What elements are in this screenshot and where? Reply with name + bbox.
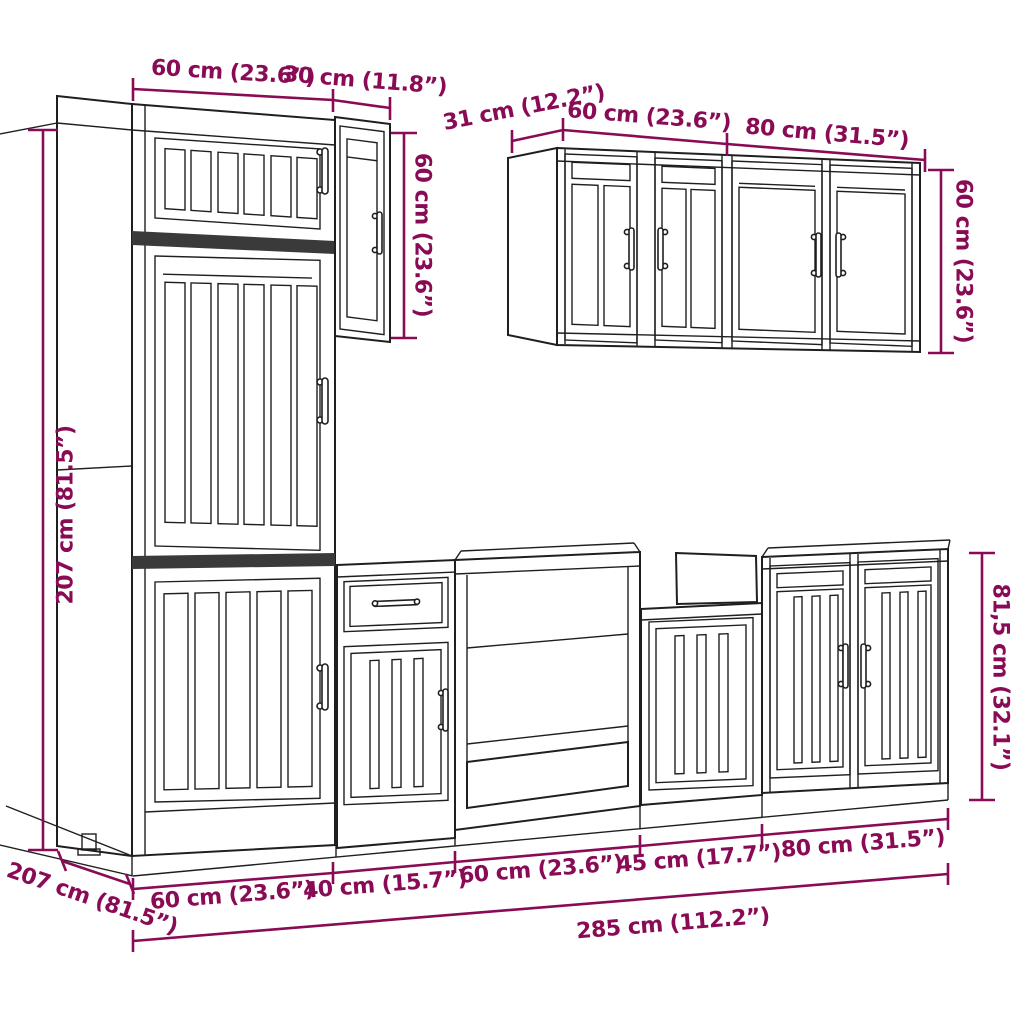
base-80-door-left xyxy=(770,563,850,778)
base-cabinet-45 xyxy=(641,553,762,805)
tall-bottom-door xyxy=(155,578,320,802)
wall-cabinet-30 xyxy=(335,117,390,342)
dim-left-height-label: 207 cm (81.5”) xyxy=(54,425,79,604)
tall-cabinet xyxy=(0,96,335,856)
dim-upper-height-label: 60 cm (23.6”) xyxy=(951,179,976,343)
wall-cabinet-group-upper xyxy=(508,148,920,352)
dim-base-height-label: 81,5 cm (32.1”) xyxy=(988,584,1013,771)
base-cabinet-60-open xyxy=(455,543,640,830)
base-cabinet-80 xyxy=(762,540,950,793)
base-80-door-right xyxy=(858,559,938,774)
product-dimension-diagram: 60 cm (23.6”) 30 cm (11.8”) 207 cm (81.5… xyxy=(0,0,1024,1024)
dim-wall-small-height-label: 60 cm (23.6”) xyxy=(410,153,435,317)
base-cabinet-40 xyxy=(337,560,455,848)
